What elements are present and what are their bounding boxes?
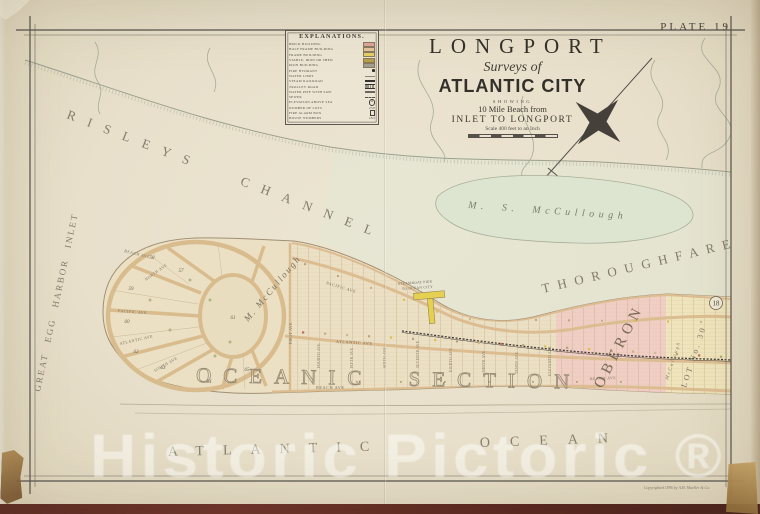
swatch-fire-alarm [370,110,375,115]
block-number: 63 [161,366,167,371]
title-block: LONGPORT Surveys of ATLANTIC CITY SHOWIN… [420,34,605,138]
swatch-hydrant [372,69,375,72]
map-photo: 18 RISLEYS CHANNEL GREAT EGG HARBOR INLE… [0,0,760,514]
block-number: 57 [179,269,185,274]
legend-title: EXPLANATIONS. [289,33,375,40]
paper-edge-right [751,0,760,514]
swatch-half-frame [363,47,375,52]
legend-label: WATER LIMIT [289,74,314,78]
block-number: 62 [134,350,140,355]
swatch-stable [363,58,375,63]
beach-lines [120,404,731,414]
legend-label: SEWER [289,95,302,99]
map-showing: SHOWING [420,99,605,104]
swatch-elevation: 10 [369,99,375,105]
block-number: 59 [129,287,135,292]
swatch-water-pipe [365,91,375,92]
swatch-house-numbers: 1321 [369,116,375,120]
swatch-sewer [365,97,375,98]
street-label: SEVENTH AVE [416,340,420,368]
watermark: Historic Pictoric ® [90,421,726,491]
scale-bar [468,134,558,139]
paper-edge-left [0,0,6,514]
map-subtitle-script: Surveys of [420,60,605,76]
legend-label: WATER PIPE WITH SIZE [289,90,332,94]
legend-label: FIRE HYDRANT [289,69,317,73]
legend-label: FRAME BUILDING [289,53,322,57]
block-number: 58 [150,256,156,261]
swatch-steam-railroad [365,80,375,82]
legend-box: EXPLANATIONS. BRICK BUILDING HALF FRAME … [285,30,379,125]
swatch-trolley [365,84,375,89]
tape-bottom-right [726,462,758,514]
legend-label: NUMBER OF LOTS [289,106,322,110]
legend-label: ELEVATION ABOVE SEA [289,100,333,104]
label-great-egg-harbor-inlet: GREAT EGG HARBOR INLET [32,212,80,393]
street-label: TENTH AVE [515,351,519,374]
swatch-iron [363,63,375,68]
legend-label: IRON BUILDING [289,63,318,67]
copyright-line: Copyrighted 1896 by A.H. Mueller & Co. [612,485,742,490]
legend-row: HOUSE NUMBERS1321 [289,116,375,121]
block-number: 64 [207,380,213,385]
block-number: 61 [231,316,236,321]
map-route-line: INLET TO LONGPORT [420,115,605,125]
street-label: ELEVENTH AVE [548,346,552,376]
photo-backing-strip [0,504,760,514]
street-label: NINTH AVE [482,350,486,372]
legend-label: STABLE, IRON OR SHED [289,58,333,62]
paper-crease-highlight [385,0,386,514]
plate-ref-number: 18 [713,300,721,308]
street-label: FIFTH AVE [350,347,354,368]
legend-label: HOUSE NUMBERS [289,116,321,120]
legend-label: TROLLEY ROAD [289,85,318,89]
street-label: FOURTH AVE [317,343,321,368]
plate-label: PLATE 19 [645,21,731,33]
swatch-water-limit [365,76,375,77]
legend-label: STEAM RAILROAD [289,79,323,83]
legend-label: FIRE ALARM BOX [289,111,321,115]
legend-label: BRICK BUILDING [289,42,321,46]
plate-ref-18: 18 [710,297,723,310]
label-first-ave: FIRST AVE [289,322,293,344]
map-beach-line: 10 Mile Beach from [420,104,605,114]
tape-bottom-left [0,450,24,505]
swatch-lot-numbers: 2745 [369,106,375,110]
map-city-title: ATLANTIC CITY [420,76,605,97]
legend-label: HALF FRAME BUILDING [289,47,333,51]
swatch-brick [363,42,375,47]
swatch-frame [363,52,375,57]
block-number: 60 [125,320,131,325]
map-scale-line: Scale 400 feet to an Inch [420,126,605,132]
street-label: EIGHTH AVE [449,348,453,372]
label-beach-ave: BEACH AVE [316,385,344,390]
block-number: 65 [245,368,251,373]
map-title: LONGPORT [420,34,605,59]
